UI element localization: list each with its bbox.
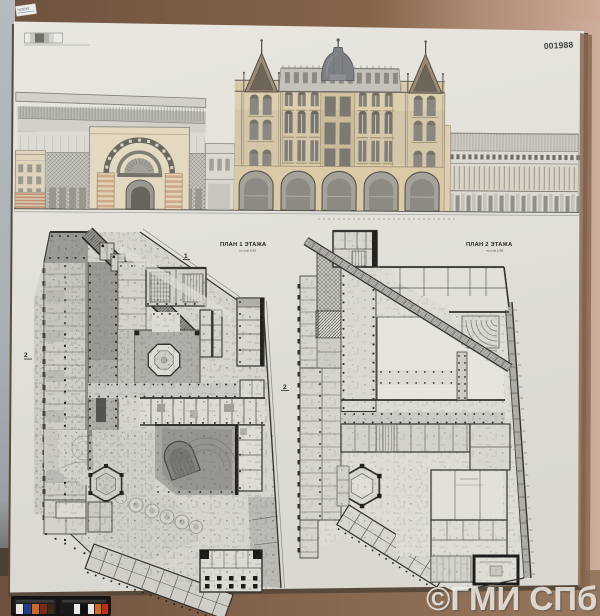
svg-text:ПЛАН 2 ЭТАЖА: ПЛАН 2 ЭТАЖА	[466, 242, 513, 248]
svg-text:1: 1	[184, 253, 188, 260]
svg-text:©ГМИ СПб: ©ГМИ СПб	[426, 580, 597, 616]
svg-text:2: 2	[24, 352, 28, 359]
svg-text:001988: 001988	[544, 39, 574, 51]
svg-text:по охм 2:30: по охм 2:30	[486, 249, 503, 253]
svg-text:ПЛАН 1 ЭТАЖА: ПЛАН 1 ЭТАЖА	[220, 242, 267, 248]
svg-text:2: 2	[283, 384, 287, 391]
svg-text:по охм 0:30: по охм 0:30	[239, 249, 256, 253]
